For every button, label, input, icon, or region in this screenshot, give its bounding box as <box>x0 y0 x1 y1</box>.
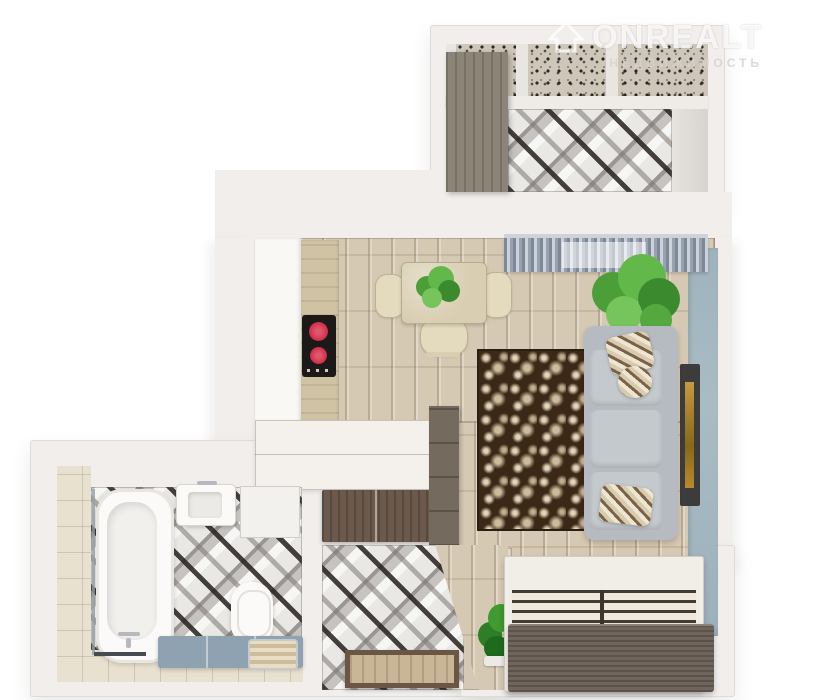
toilet <box>231 582 273 642</box>
sofa-pillow <box>598 483 654 527</box>
sofa-cushion <box>590 410 662 468</box>
watermark: ONREALT НЕДВИЖИМОСТЬ <box>548 20 816 70</box>
balcony-tile-floor <box>508 109 672 192</box>
watermark-brand: ONREALT <box>592 20 763 53</box>
dining-chair-base <box>426 352 460 357</box>
bathtub-basin <box>107 502 157 640</box>
wall-main-top-right <box>445 192 732 238</box>
sink-basin <box>188 492 222 518</box>
cooktop-burner <box>309 322 328 341</box>
bed-footboard <box>508 624 714 692</box>
bathtub-faucet <box>118 632 140 636</box>
bathtub-faucet-spout <box>126 638 131 648</box>
cooktop-knobs <box>307 369 331 372</box>
entry-door <box>345 650 459 688</box>
wall-picture-frame <box>680 364 700 506</box>
bed-center-rail <box>600 590 604 628</box>
bar-peninsula <box>255 420 431 490</box>
tall-cabinet <box>429 406 459 546</box>
watermark-subtitle: НЕДВИЖИМОСТЬ <box>592 56 763 70</box>
bathtub-edge-line <box>94 652 146 656</box>
wall-main-top-left <box>215 170 450 238</box>
shower-glass-line <box>92 489 95 655</box>
sofa-round-pillow <box>618 366 652 398</box>
window-mullion <box>516 44 528 96</box>
bed-slats <box>512 590 696 628</box>
dark-sideboard <box>322 490 430 542</box>
balcony-side-panel <box>672 109 708 192</box>
kitchen-cabinet-column <box>255 238 301 422</box>
onrealt-house-icon <box>548 20 584 54</box>
washer-panel <box>240 486 300 538</box>
wall-picture-art <box>685 382 694 488</box>
bathroom-sink <box>176 484 236 526</box>
sink-faucet <box>197 481 217 485</box>
balcony-wardrobe <box>446 52 508 192</box>
toilet-seat <box>237 590 271 638</box>
induction-cooktop <box>302 315 336 377</box>
cooktop-burner <box>310 347 327 364</box>
floorplan-canvas: ONREALT НЕДВИЖИМОСТЬ <box>0 0 821 700</box>
table-plant <box>412 264 464 312</box>
towel-basket <box>248 639 298 670</box>
